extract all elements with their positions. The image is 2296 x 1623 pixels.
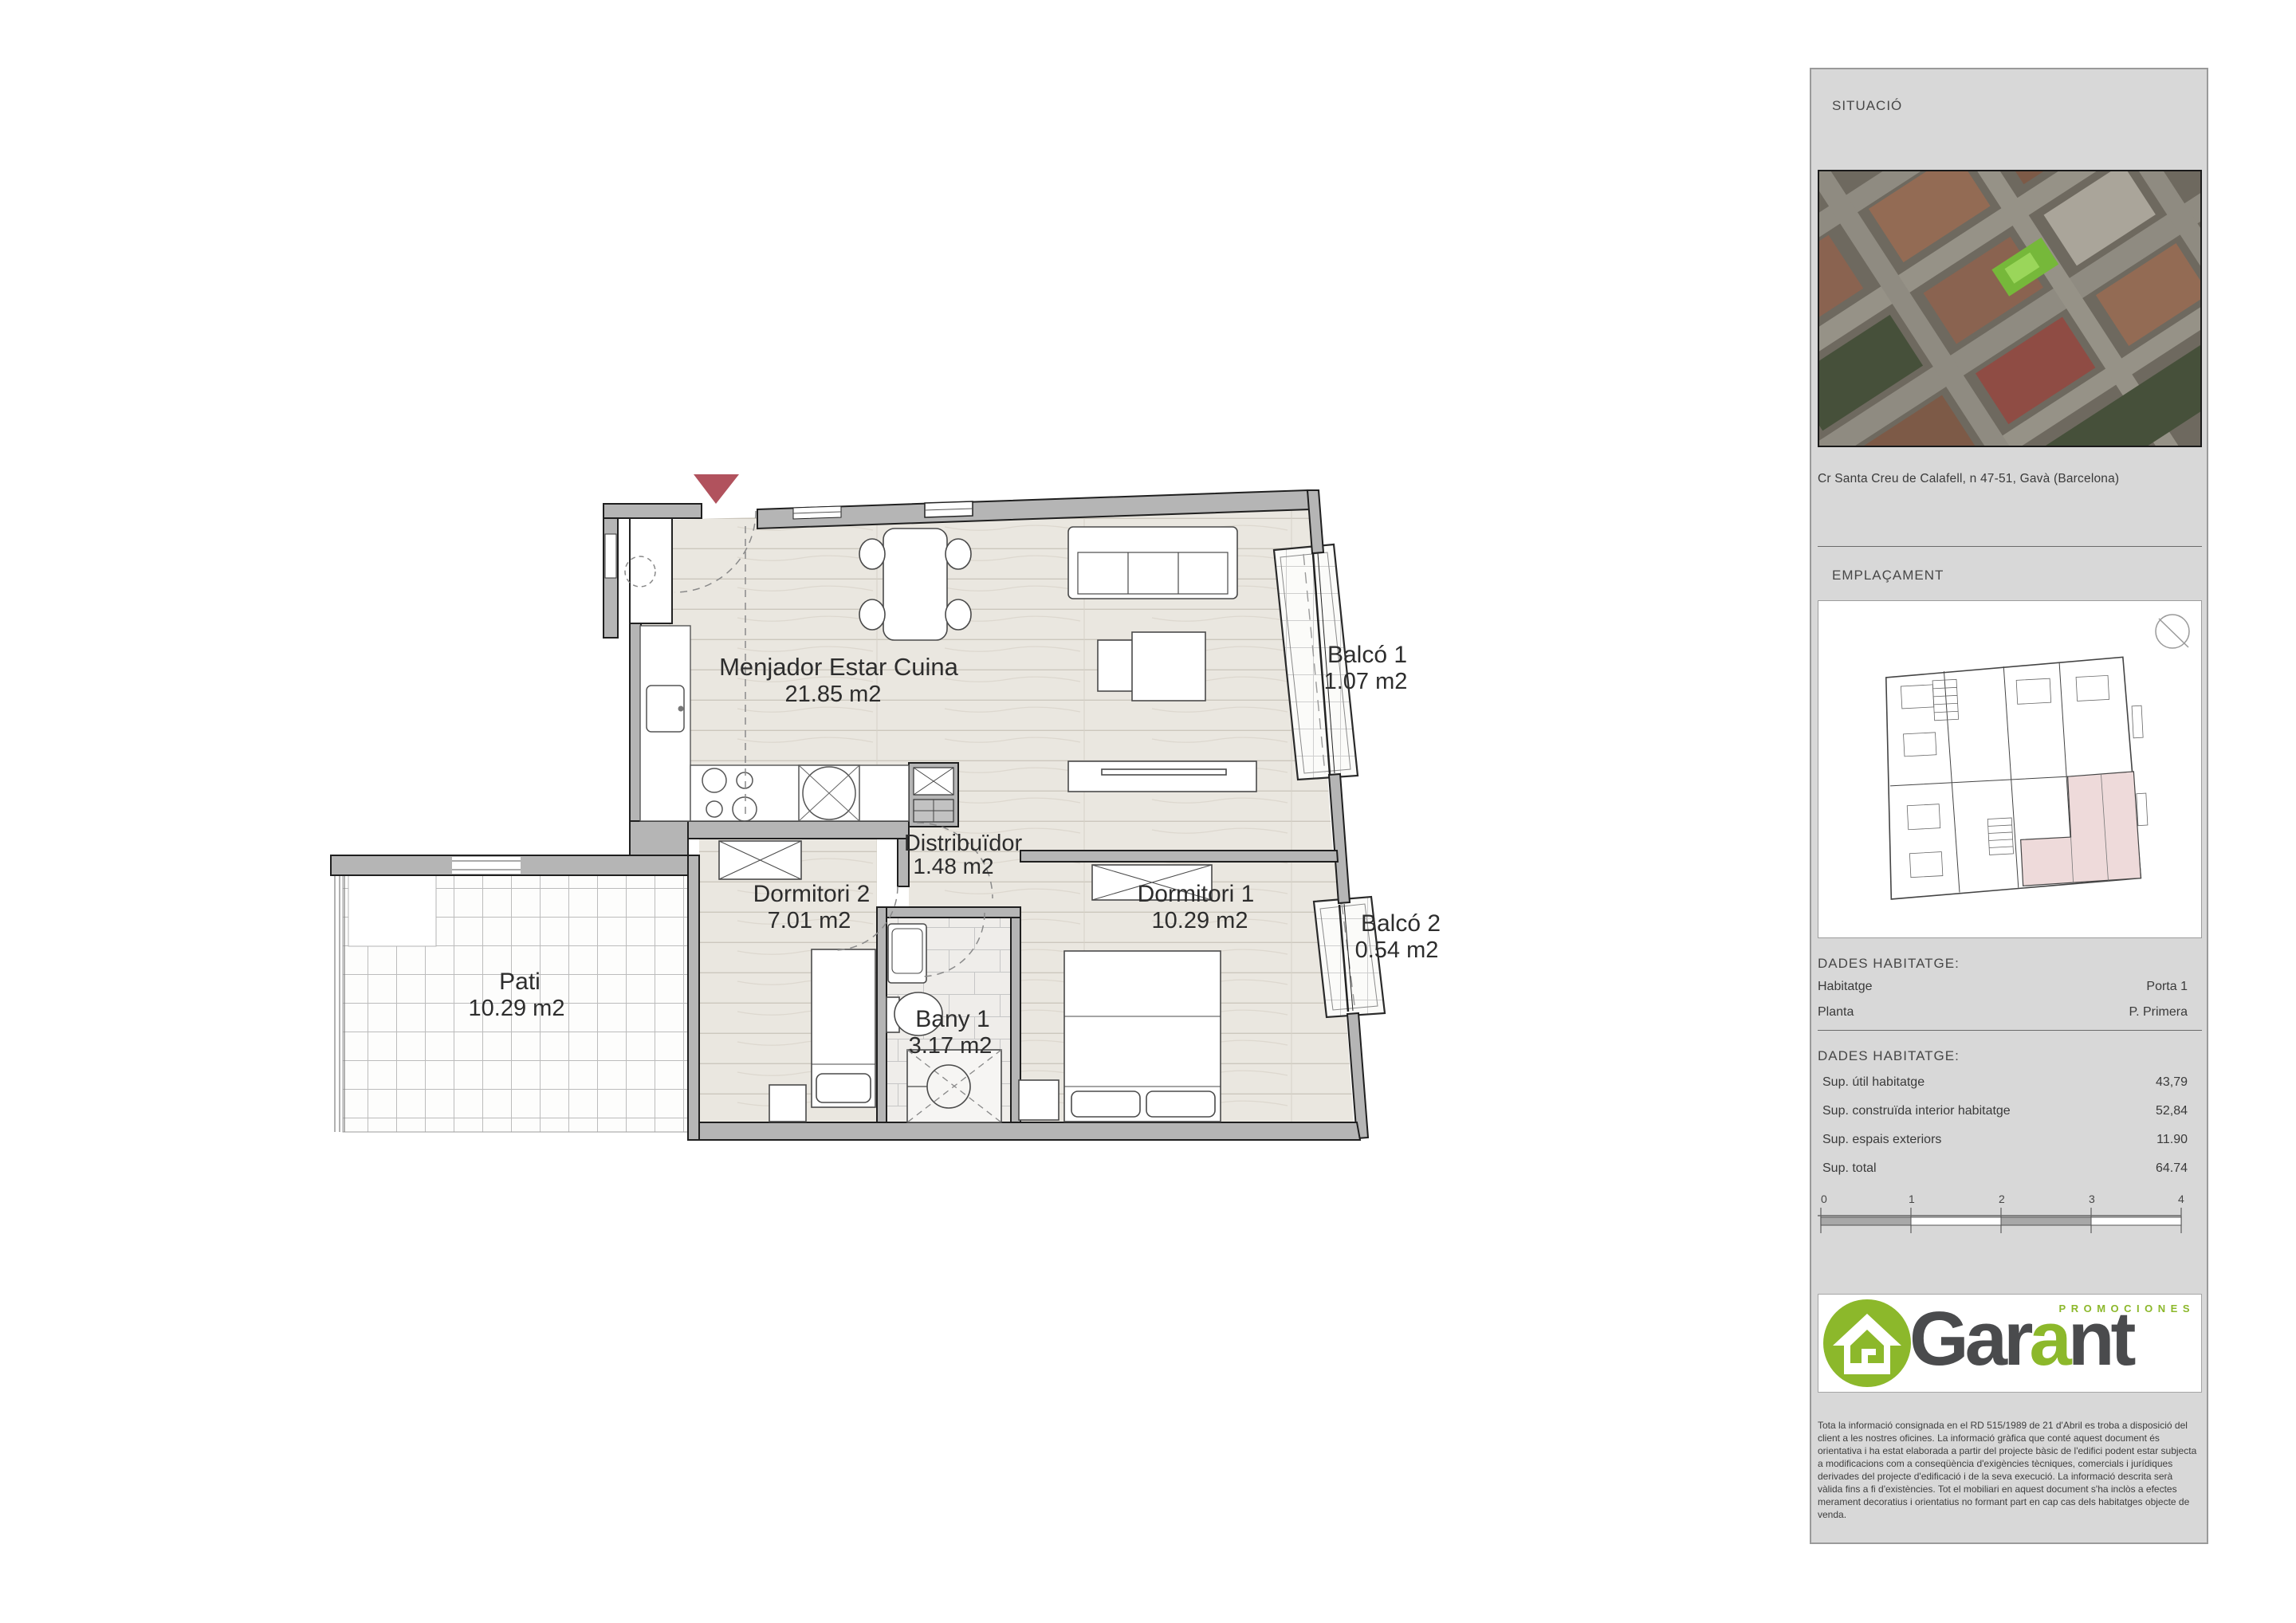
room-label-pati: Pati <box>499 969 541 995</box>
room-label-balco2: Balcó 2 <box>1361 910 1441 937</box>
room-area-pati: 10.29 m2 <box>469 996 565 1021</box>
scale-tick-label: 1 <box>1909 1193 1915 1205</box>
area-value: 52,84 <box>2156 1104 2188 1118</box>
logo-brand-part: Gar <box>1909 1296 2029 1381</box>
area-label: Sup. construïda interior habitatge <box>1822 1104 2011 1118</box>
tv-unit <box>1068 761 1256 792</box>
pillow <box>1071 1091 1140 1117</box>
area-value: 11.90 <box>2156 1133 2188 1147</box>
room-area-balco2: 0.54 m2 <box>1355 937 1439 963</box>
room-area-dormitori2: 7.01 m2 <box>768 908 851 933</box>
entry-marker <box>694 474 739 504</box>
emplacament-title: EMPLAÇAMENT <box>1832 568 1944 584</box>
site-plan <box>1818 600 2202 938</box>
room-area-bany: 3.17 m2 <box>909 1033 993 1059</box>
sofa <box>1068 527 1237 599</box>
room-label-distribuidor: Distribuïdor <box>904 831 1023 856</box>
sink <box>888 924 926 983</box>
room-area-distribuidor: 1.48 m2 <box>913 854 993 878</box>
aerial-photo <box>1818 170 2202 447</box>
pillow <box>1146 1091 1215 1117</box>
address-text: Cr Santa Creu de Calafell, n 47-51, Gavà… <box>1818 472 2204 486</box>
site-plan-image <box>1818 601 2202 938</box>
info-panel: SITUACIÓ <box>1810 68 2208 1544</box>
info-value: Porta 1 <box>2146 980 2188 994</box>
coffee-table <box>1132 632 1205 701</box>
area-label: Sup. espais exteriors <box>1822 1133 1941 1147</box>
nightstand <box>769 1085 806 1122</box>
room-label-balco1: Balcó 1 <box>1327 642 1407 668</box>
scale-tick-label: 2 <box>1999 1193 2005 1205</box>
patio-planter <box>348 875 436 946</box>
dining-table <box>883 529 947 640</box>
area-value: 43,79 <box>2156 1075 2188 1090</box>
info-label: Habitatge <box>1818 980 1873 994</box>
room-label-dormitori1: Dormitori 1 <box>1138 881 1255 907</box>
logo-brand-part-green: a <box>2029 1296 2067 1381</box>
room-label-bany: Bany 1 <box>915 1006 989 1032</box>
nightstand <box>1019 1080 1059 1120</box>
aerial-photo-image <box>1819 171 2202 447</box>
scale-tick-label: 0 <box>1821 1193 1827 1205</box>
floorplan-sheet: Menjador Estar Cuina 21.85 m2 Distribuïd… <box>0 0 2296 1623</box>
logo: PROMOCIONES Garant <box>1818 1294 2202 1393</box>
logo-house-icon <box>1822 1298 1913 1389</box>
situacio-title: SITUACIÓ <box>1832 98 1902 114</box>
dades-title-2: DADES HABITATGE: <box>1818 1048 1960 1064</box>
logo-brand: Garant <box>1909 1301 2132 1377</box>
legal-disclaimer: Tota la informació consignada en el RD 5… <box>1818 1420 2197 1522</box>
scale-bar: 0 1 2 3 4 <box>1818 1192 2188 1243</box>
floor-plan: Menjador Estar Cuina 21.85 m2 Distribuïd… <box>311 458 1475 1184</box>
divider <box>1818 1030 2202 1031</box>
room-area-menjador: 21.85 m2 <box>785 682 882 707</box>
room-label-dormitori2: Dormitori 2 <box>753 881 871 907</box>
area-label: Sup. útil habitatge <box>1822 1075 1924 1090</box>
area-value: 64.74 <box>2156 1161 2188 1176</box>
room-area-dormitori1: 10.29 m2 <box>1152 908 1248 933</box>
info-label: Planta <box>1818 1005 1854 1020</box>
dades-title-1: DADES HABITATGE: <box>1818 956 1960 972</box>
area-label: Sup. total <box>1822 1161 1877 1176</box>
north-icon <box>2156 615 2189 648</box>
logo-brand-part: nt <box>2068 1296 2133 1381</box>
room-area-balco1: 1.07 m2 <box>1324 669 1408 694</box>
shaft <box>909 763 958 827</box>
scale-tick-label: 3 <box>2089 1193 2095 1205</box>
info-value: P. Primera <box>2129 1005 2188 1020</box>
room-label-menjador: Menjador Estar Cuina <box>719 653 959 681</box>
scale-tick-label: 4 <box>2178 1193 2184 1205</box>
divider <box>1818 546 2202 547</box>
tv <box>1102 769 1226 775</box>
pillow <box>816 1074 871 1102</box>
